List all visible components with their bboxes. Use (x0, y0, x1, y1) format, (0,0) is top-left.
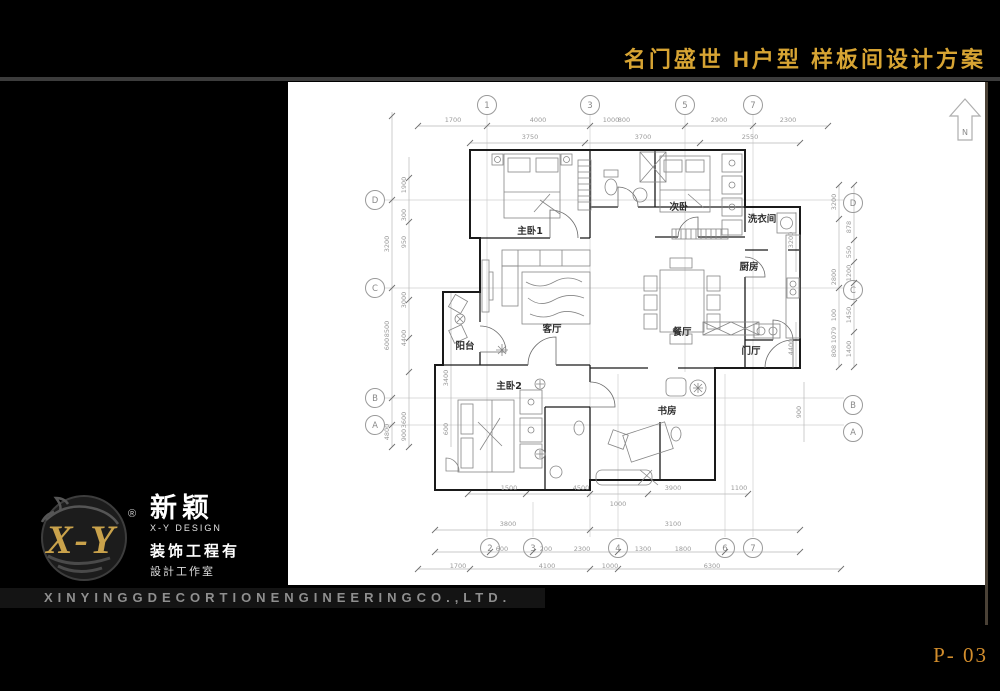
grid-bubble-label: 3 (587, 101, 592, 111)
dim-label: 550 (845, 246, 853, 258)
room-label: 洗衣间 (748, 213, 777, 225)
dim-label: 1000 (602, 562, 619, 570)
dim-label: 3600 (400, 412, 408, 429)
dim-label: 3400 (442, 370, 450, 387)
dim-label: 4500 (573, 484, 590, 492)
logo-line1: 装饰工程有 (150, 540, 240, 561)
dim-label: 3700 (635, 133, 652, 141)
dim-label: 1200 (845, 265, 853, 282)
logo-text-block: 新颖 X-Y DESIGN 装饰工程有 設計工作室 (150, 494, 240, 579)
grid-bubble-label: 1 (484, 101, 489, 111)
dim-label: 1800 (675, 545, 692, 553)
grid-bubble-label: A (372, 421, 378, 431)
dim-label: 4100 (539, 562, 556, 570)
dim-label: 3000 (400, 292, 408, 309)
grid-bubble-label: D (372, 196, 379, 206)
dim-label: 8500 (383, 321, 391, 338)
dim-label: 1900 (400, 177, 408, 194)
logo-cn-name: 新颖 (150, 494, 240, 522)
dim-label: 1450 (845, 307, 853, 324)
dim-label: 4400 (787, 339, 795, 356)
room-label: 客厅 (541, 323, 562, 335)
presentation-slide: 名门盛世 H户型 样板间设计方案 (0, 0, 1000, 691)
dim-label: 1400 (845, 341, 853, 358)
company-logo: X-Y ® 新颖 X-Y DESIGN 装饰工程有 設計工作室 (28, 490, 278, 586)
floor-plan-svg: 1700400010008002900230037503700255019003… (288, 82, 985, 585)
dim-label: 4400 (400, 330, 408, 347)
door-arcs (480, 187, 793, 407)
dim-label: 600 (496, 545, 508, 553)
floorplan-sheet: 1700400010008002900230037503700255019003… (288, 82, 985, 585)
north-label: N (962, 128, 968, 137)
dim-label: 900 (795, 406, 803, 418)
dim-label: 1100 (731, 484, 748, 492)
dim-label: 3200 (787, 232, 795, 249)
dim-label: 808 (830, 345, 838, 357)
accent-line (985, 82, 988, 625)
room-label: 阳台 (455, 340, 475, 352)
dim-label: 3750 (522, 133, 539, 141)
title-divider (0, 77, 1000, 81)
room-label: 次卧 (669, 201, 689, 213)
dim-label: 800 (618, 116, 630, 124)
dim-label: 1700 (445, 116, 462, 124)
dim-label: 100 (830, 309, 838, 321)
dim-label: 1500 (501, 484, 518, 492)
room-label: 门厅 (741, 345, 761, 357)
logo-en-name: X-Y DESIGN (150, 523, 240, 533)
room-label: 主卧1 (517, 225, 543, 237)
dim-label: 3100 (665, 520, 682, 528)
dim-label: 1079 (830, 327, 838, 344)
grid-bubble-label: 7 (750, 544, 755, 554)
logo-xy-text: X-Y (46, 516, 116, 563)
room-label: 主卧2 (496, 380, 522, 392)
dim-label: 878 (845, 221, 853, 233)
dim-label: 1300 (635, 545, 652, 553)
grid-bubble-label: B (850, 401, 856, 411)
grid-lines (385, 115, 844, 537)
grid-bubble-label: 5 (682, 101, 687, 111)
dim-label: 300 (400, 209, 408, 221)
room-label: 餐厅 (671, 326, 692, 338)
grid-bubble-label: D (850, 199, 857, 209)
dim-label: 6300 (704, 562, 721, 570)
company-banner: XINYINGGDECORTIONENGINEERINGCO.,LTD. (0, 588, 545, 608)
dim-label: 2300 (574, 545, 591, 553)
dim-label: 950 (400, 236, 408, 248)
grid-bubble-label: A (850, 428, 856, 438)
dim-label: 600 (442, 423, 450, 435)
furniture (446, 152, 800, 485)
grid-bubble-label: C (850, 286, 856, 296)
registered-mark: ® (128, 508, 136, 520)
dim-label: 900 (400, 429, 408, 441)
grid-bubble-label: 7 (750, 101, 755, 111)
dim-label: 600 (383, 338, 391, 350)
dim-label: 1700 (450, 562, 467, 570)
slide-title: 名门盛世 H户型 样板间设计方案 (624, 42, 986, 74)
grid-bubble-label: B (372, 394, 378, 404)
room-label: 厨房 (739, 261, 758, 273)
dim-label: 3200 (383, 236, 391, 253)
dim-label: 4000 (530, 116, 547, 124)
dim-label: 1000 (603, 116, 620, 124)
dim-label: 2900 (711, 116, 728, 124)
logo-line2: 設計工作室 (150, 563, 240, 579)
dim-label: 3900 (665, 484, 682, 492)
dim-label: 3800 (500, 520, 517, 528)
dim-label: 1000 (610, 500, 627, 508)
dim-label: 2300 (780, 116, 797, 124)
room-label: 书房 (657, 405, 676, 417)
dim-label: 2800 (830, 269, 838, 286)
dim-label: 2550 (742, 133, 759, 141)
page-number: P- 03 (933, 643, 988, 668)
dim-label: 3200 (830, 194, 838, 211)
grid-bubble-label: C (372, 284, 378, 294)
